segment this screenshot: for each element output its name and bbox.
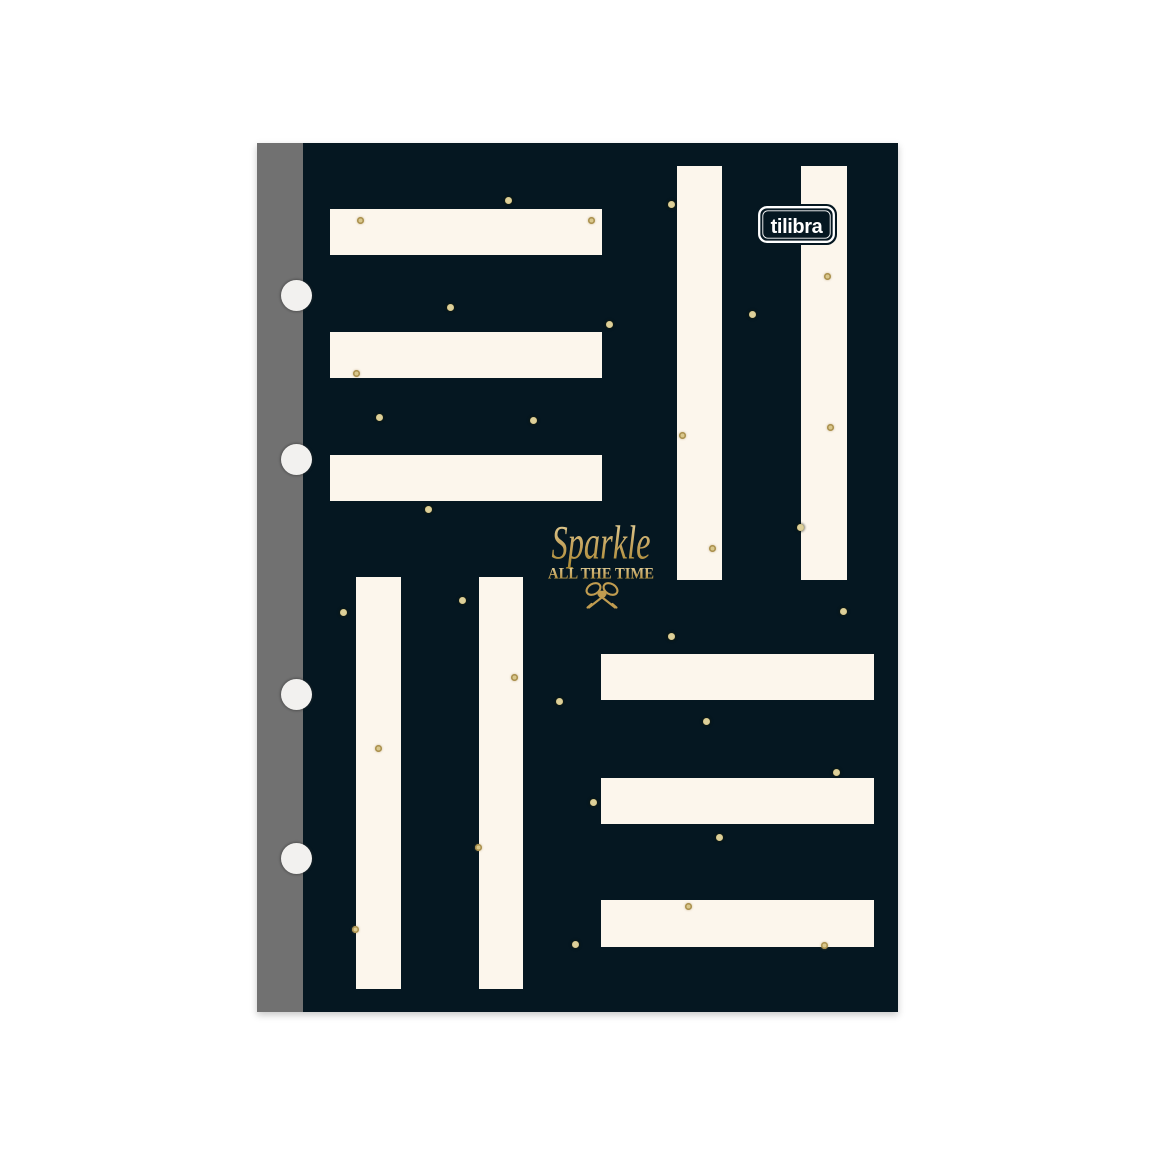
- svg-text:Sparkle: Sparkle: [552, 517, 651, 570]
- svg-text:tilibra: tilibra: [771, 216, 824, 238]
- svg-text:ALL THE TIME: ALL THE TIME: [548, 566, 654, 583]
